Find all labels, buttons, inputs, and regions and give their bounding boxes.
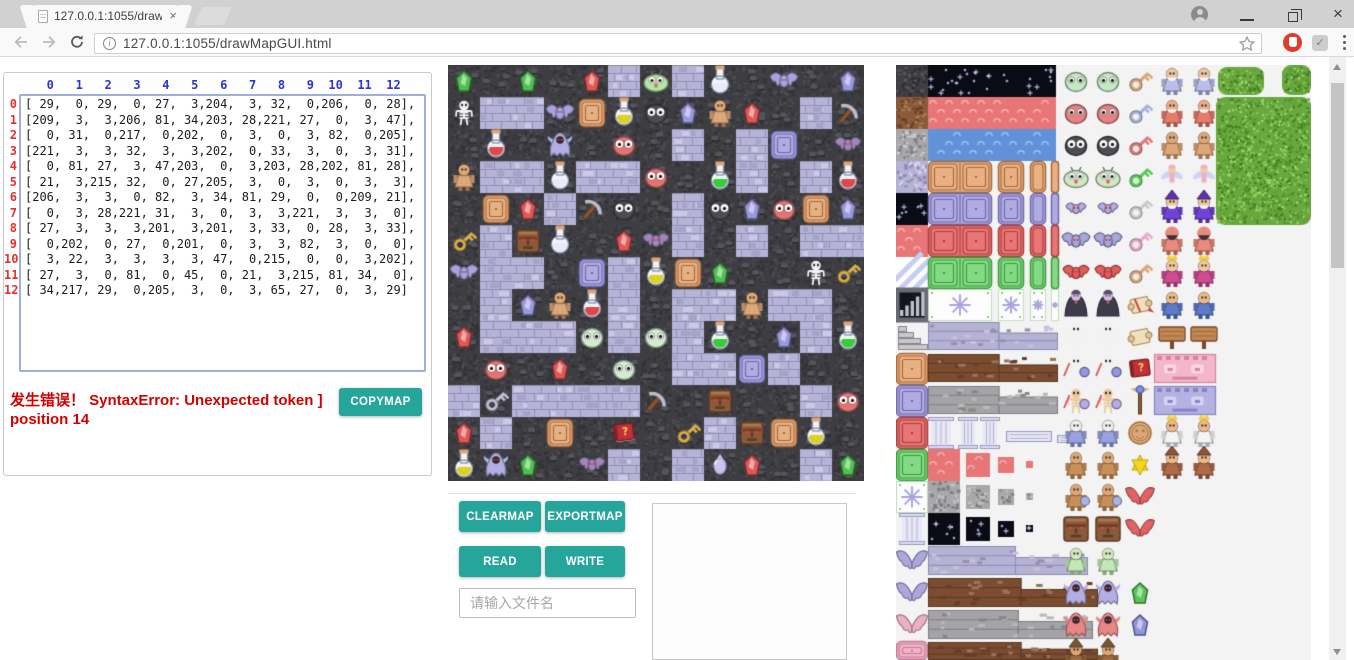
forward-icon[interactable]	[40, 33, 58, 51]
row-header: 9	[4, 237, 17, 253]
matrix-row-headers: 0123456789101112	[4, 97, 17, 299]
row-header: 3	[4, 144, 17, 160]
row-header: 11	[4, 268, 17, 284]
matrix-panel: 0 1 2 3 4 5 6 7 8 9 10 11 12 01234567891…	[3, 72, 432, 476]
tab-strip: 127.0.0.1:1055/drawMa × ×	[0, 0, 1354, 28]
exportmap-button[interactable]: EXPORTMAP	[545, 501, 625, 532]
bookmark-star-icon[interactable]	[1238, 35, 1256, 53]
new-tab-button[interactable]	[194, 7, 232, 25]
scrollbar-up-arrow[interactable]	[1333, 64, 1341, 70]
row-header: 2	[4, 128, 17, 144]
map-canvas[interactable]	[448, 65, 864, 481]
browser-toolbar: i 127.0.0.1:1055/drawMapGUI.html ✓	[0, 28, 1354, 57]
matrix-column-headers: 0 1 2 3 4 5 6 7 8 9 10 11 12	[25, 78, 401, 92]
filename-input[interactable]	[459, 588, 636, 618]
divider	[448, 493, 856, 494]
row-header: 5	[4, 175, 17, 191]
reload-icon[interactable]	[68, 33, 86, 51]
read-button[interactable]: READ	[459, 546, 541, 577]
row-header: 1	[4, 113, 17, 129]
window-close-button[interactable]: ×	[1333, 4, 1343, 24]
page-scrollbar[interactable]	[1329, 57, 1346, 660]
url-bar[interactable]: i 127.0.0.1:1055/drawMapGUI.html	[94, 33, 1262, 54]
url-text: 127.0.0.1:1055/drawMapGUI.html	[123, 36, 332, 51]
page-icon	[38, 10, 48, 23]
scrollbar-down-arrow[interactable]	[1333, 649, 1341, 655]
row-header: 7	[4, 206, 17, 222]
tileset-palette[interactable]	[896, 65, 1311, 660]
browser-menu-icon[interactable]	[1343, 35, 1347, 51]
tab-title: 127.0.0.1:1055/drawMa	[54, 9, 162, 24]
row-header: 8	[4, 221, 17, 237]
row-header: 4	[4, 159, 17, 175]
row-header: 12	[4, 283, 17, 299]
info-icon[interactable]: i	[103, 37, 116, 50]
copymap-button[interactable]: COPYMAP	[339, 388, 422, 416]
row-header: 0	[4, 97, 17, 113]
write-button[interactable]: WRITE	[545, 546, 625, 577]
window-restore-button[interactable]	[1288, 12, 1298, 22]
back-icon[interactable]	[12, 33, 30, 51]
browser-tab[interactable]: 127.0.0.1:1055/drawMa ×	[30, 5, 182, 28]
tab-close-icon[interactable]: ×	[169, 8, 177, 23]
profile-icon[interactable]	[1191, 6, 1208, 23]
scrollbar-thumb[interactable]	[1331, 83, 1344, 268]
error-message: 发生错误！ SyntaxError: Unexpected token ] po…	[10, 391, 350, 429]
extension-hand-icon[interactable]	[1283, 33, 1302, 52]
row-header: 6	[4, 190, 17, 206]
output-box	[652, 503, 847, 660]
clearmap-button[interactable]: CLEARMAP	[459, 501, 541, 532]
window-minimize-button[interactable]	[1240, 19, 1254, 21]
extension-check-icon[interactable]: ✓	[1312, 35, 1328, 51]
matrix-textarea[interactable]	[19, 94, 426, 372]
row-header: 10	[4, 252, 17, 268]
